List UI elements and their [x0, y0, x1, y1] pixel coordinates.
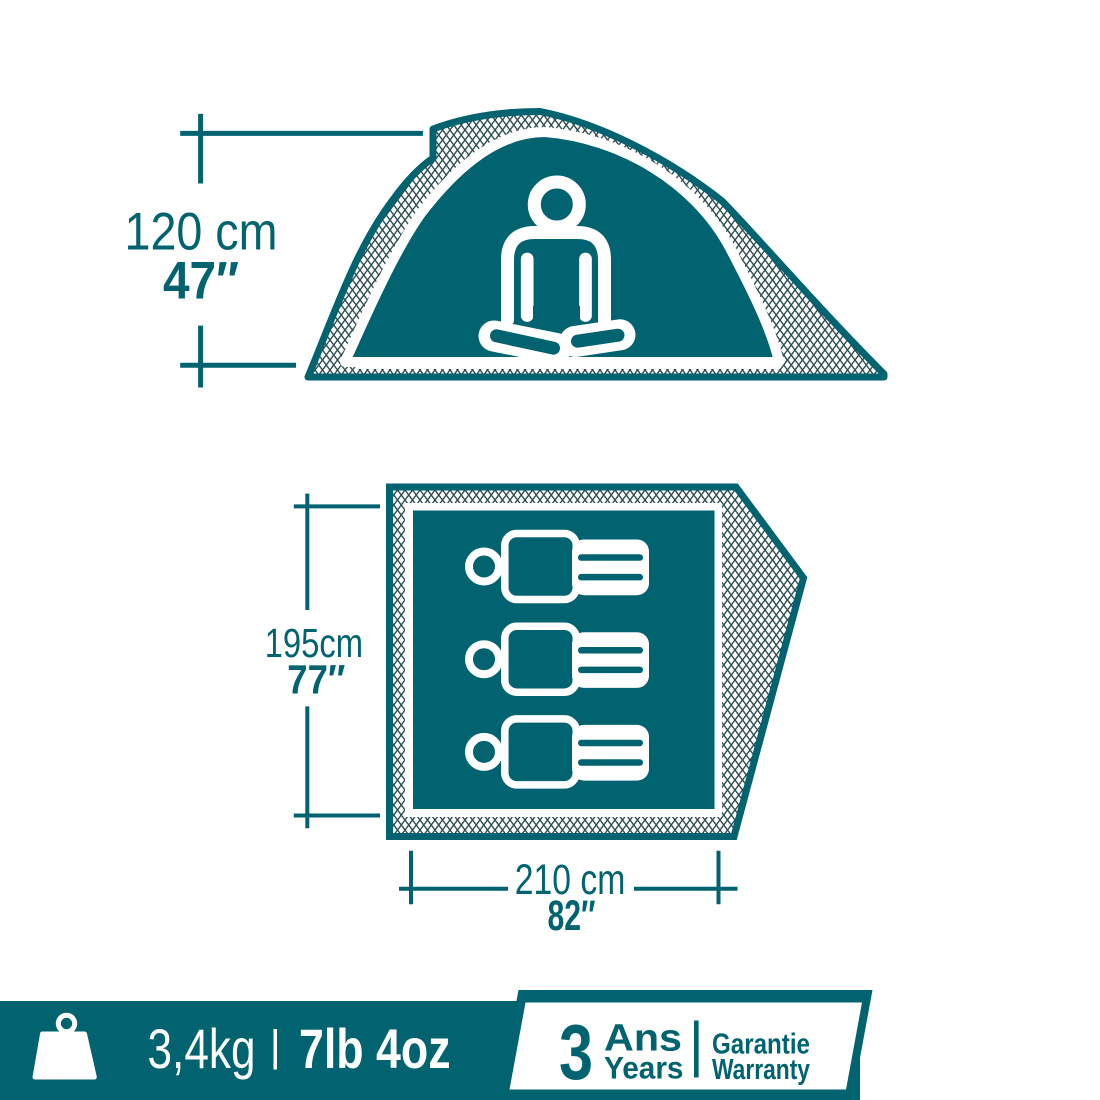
- svg-text:Warranty: Warranty: [712, 1054, 810, 1086]
- svg-text:82″: 82″: [548, 893, 596, 940]
- svg-text:47″: 47″: [163, 252, 239, 311]
- svg-text:3: 3: [559, 1008, 593, 1096]
- svg-text:77″: 77″: [287, 656, 345, 702]
- svg-text:Years: Years: [604, 1050, 684, 1085]
- svg-text:3,4kg: 3,4kg: [148, 1018, 256, 1080]
- svg-text:7lb 4oz: 7lb 4oz: [299, 1018, 451, 1080]
